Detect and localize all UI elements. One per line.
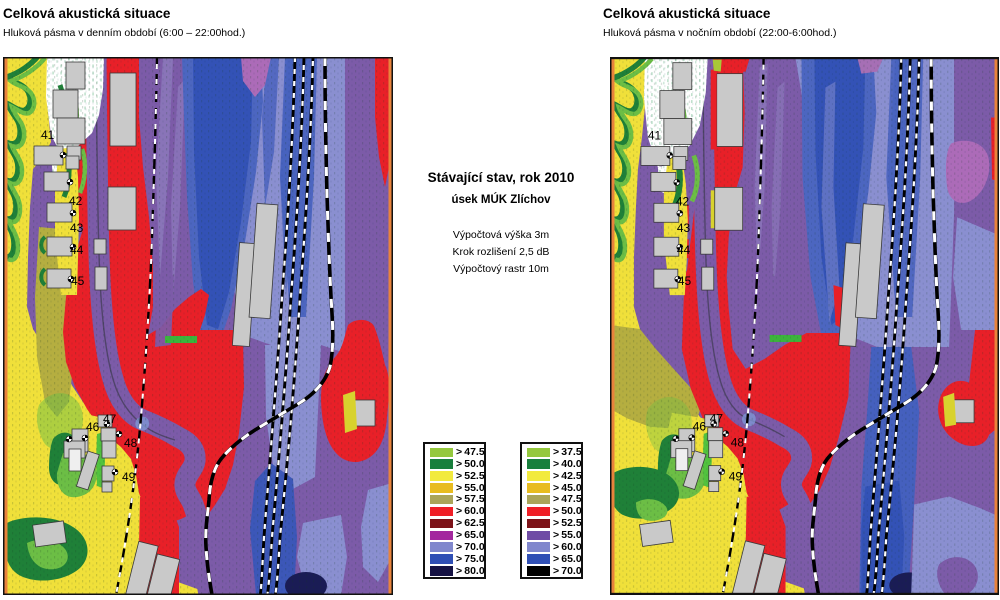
svg-text:42: 42 — [69, 194, 83, 208]
svg-text:45: 45 — [678, 274, 692, 288]
svg-text:48: 48 — [124, 436, 138, 450]
svg-text:45: 45 — [71, 274, 85, 288]
svg-text:49: 49 — [122, 470, 136, 484]
svg-text:43: 43 — [70, 221, 84, 235]
svg-text:44: 44 — [70, 243, 84, 257]
svg-text:42: 42 — [676, 194, 690, 208]
svg-text:43: 43 — [677, 221, 691, 235]
svg-text:47: 47 — [103, 412, 117, 426]
svg-text:49: 49 — [729, 470, 743, 484]
svg-text:41: 41 — [41, 128, 55, 142]
svg-text:46: 46 — [86, 420, 100, 434]
svg-text:48: 48 — [731, 436, 745, 450]
svg-text:41: 41 — [648, 128, 662, 142]
svg-text:46: 46 — [693, 420, 707, 434]
svg-text:44: 44 — [677, 243, 691, 257]
svg-text:47: 47 — [710, 412, 724, 426]
